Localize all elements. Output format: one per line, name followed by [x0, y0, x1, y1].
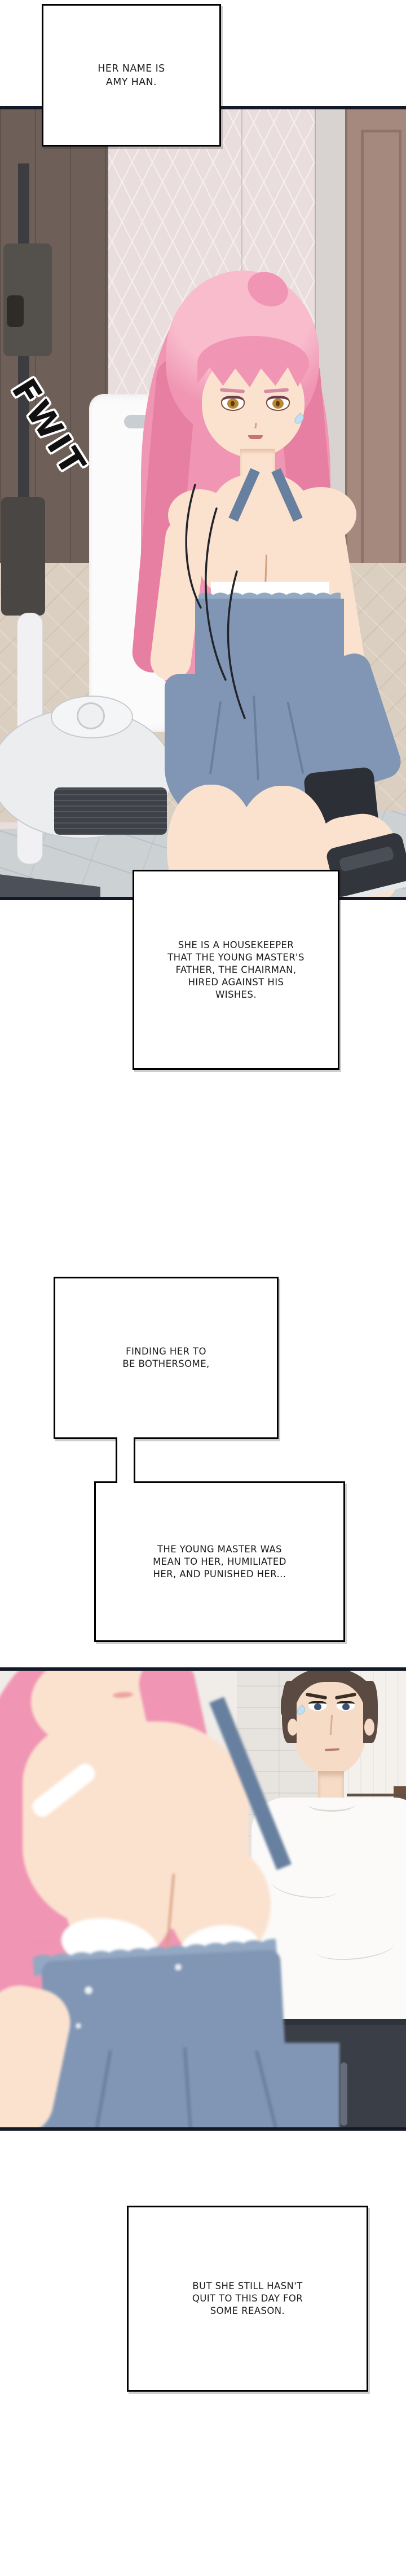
fg-shine-dot-1 [85, 1986, 92, 1994]
narration-line: MEAN TO HER, HUMILIATED [153, 1556, 286, 1568]
narration-line: SHE IS A HOUSEKEEPER [167, 939, 304, 951]
woman-iris-left [227, 399, 239, 409]
motion-lines-icon [179, 481, 264, 729]
narration-line: AMY HAN. [98, 76, 165, 89]
fg-apron-skirt [20, 2043, 339, 2131]
door-panel-inset [361, 130, 401, 605]
narration-box-2: SHE IS A HOUSEKEEPER THAT THE YOUNG MAST… [133, 870, 339, 1070]
narration-box-connector [116, 1437, 135, 1483]
foreground-woman [0, 1671, 406, 2127]
narration-line: WISHES. [167, 989, 304, 1001]
fg-shine-dot-2 [76, 2023, 81, 2029]
vacuum-dock-head [1, 497, 45, 616]
narration-text-1: HER NAME IS AMY HAN. [98, 62, 165, 89]
narration-box-1: HER NAME IS AMY HAN. [42, 4, 221, 147]
narration-box-3: FINDING HER TO BE BOTHERSOME, [54, 1277, 279, 1439]
narration-line: FATHER, THE CHAIRMAN, [167, 964, 304, 976]
fg-shine-dot-3 [175, 1964, 182, 1971]
panel-laundry-room: FWIT [0, 106, 406, 900]
narration-line: HIRED AGAINST HIS [167, 976, 304, 989]
woman-mouth [248, 435, 263, 439]
robot-vacuum-ring [77, 702, 105, 729]
narration-line: BUT SHE STILL HASN'T [192, 2280, 303, 2292]
narration-line: HER NAME IS [98, 62, 165, 76]
narration-text-2: SHE IS A HOUSEKEEPER THAT THE YOUNG MAST… [167, 939, 304, 1001]
narration-line: SOME REASON. [192, 2305, 303, 2317]
woman-pupil-left [231, 401, 235, 406]
narration-text-5: BUT SHE STILL HASN'T QUIT TO THIS DAY FO… [192, 2280, 303, 2317]
narration-line: THE YOUNG MASTER WAS [153, 1543, 286, 1556]
woman-pupil-right [276, 401, 280, 406]
woman-eye-right [266, 396, 290, 411]
narration-box-5: BUT SHE STILL HASN'T QUIT TO THIS DAY FO… [127, 2206, 368, 2392]
robot-vacuum-grill [54, 787, 167, 835]
woman-iris-right [272, 399, 284, 409]
webtoon-page: FWIT [0, 0, 406, 2576]
narration-text-3: FINDING HER TO BE BOTHERSOME, [122, 1345, 209, 1370]
narration-text-4: THE YOUNG MASTER WAS MEAN TO HER, HUMILI… [153, 1543, 286, 1581]
woman-eye-left [221, 396, 245, 411]
narration-line: QUIT TO THIS DAY FOR [192, 2292, 303, 2305]
narration-box-4: THE YOUNG MASTER WAS MEAN TO HER, HUMILI… [94, 1481, 345, 1642]
narration-line: HER, AND PUNISHED HER... [153, 1568, 286, 1581]
narration-line: BE BOTHERSOME, [122, 1358, 209, 1370]
vacuum-lens [7, 295, 24, 327]
narration-line: FINDING HER TO [122, 1345, 209, 1358]
narration-line: THAT THE YOUNG MASTER'S [167, 951, 304, 964]
panel-kitchen [0, 1667, 406, 2131]
